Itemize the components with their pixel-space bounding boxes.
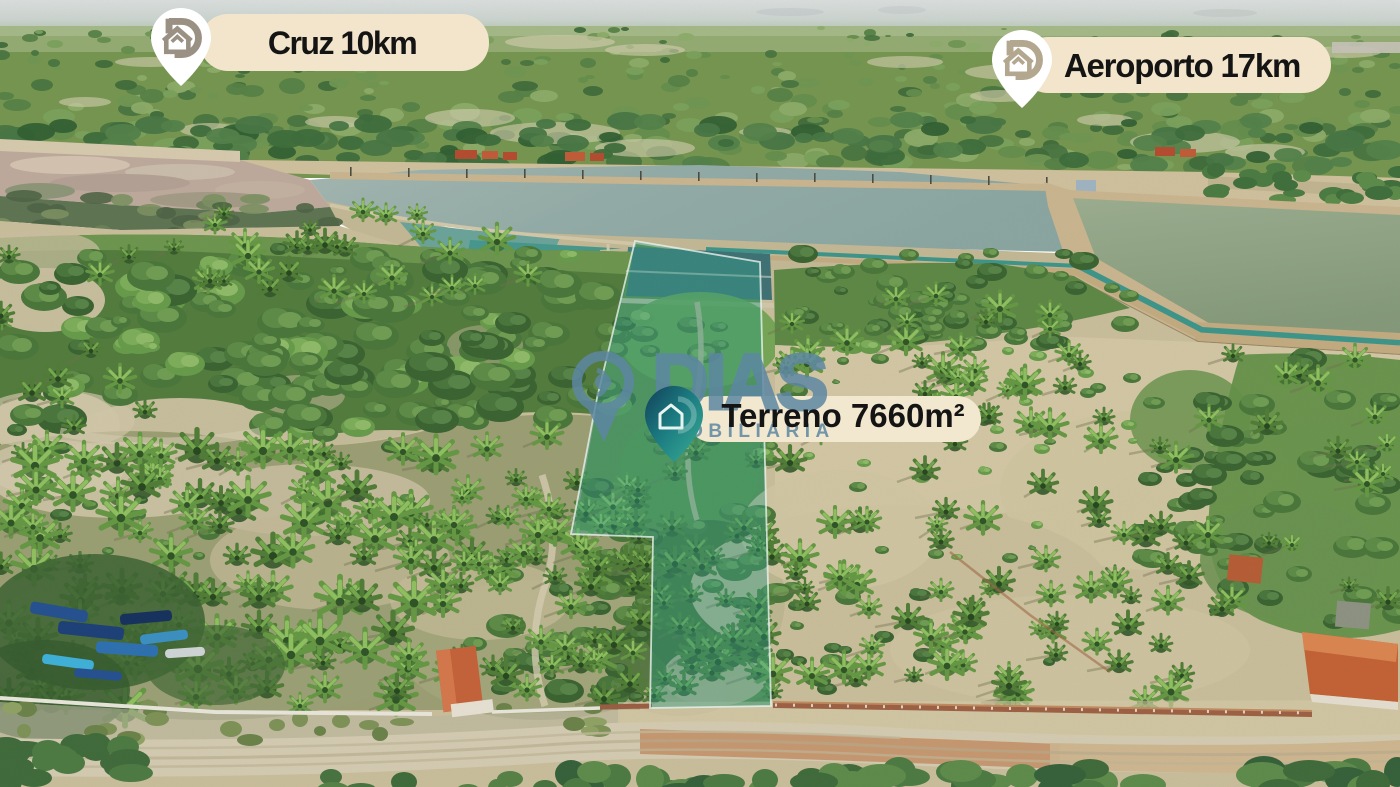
svg-text:Terreno 7660m²: Terreno 7660m²: [721, 397, 964, 434]
svg-text:Aeroporto 17km: Aeroporto 17km: [1064, 47, 1300, 84]
svg-text:Cruz 10km: Cruz 10km: [268, 25, 416, 61]
